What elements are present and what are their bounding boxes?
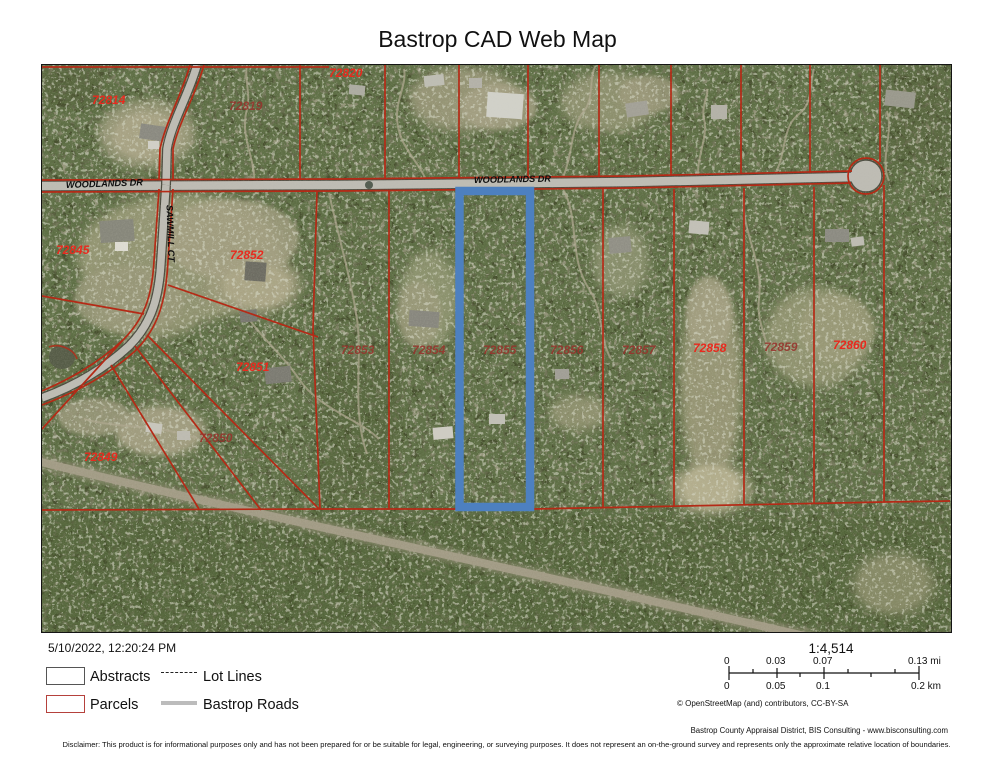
svg-text:72819: 72819 — [229, 99, 263, 113]
svg-text:WOODLANDS DR: WOODLANDS DR — [474, 174, 552, 185]
svg-text:72820: 72820 — [329, 66, 363, 80]
svg-text:SAWMILL CT: SAWMILL CT — [165, 205, 177, 264]
svg-text:72851: 72851 — [236, 360, 270, 374]
svg-text:72859: 72859 — [764, 340, 798, 354]
svg-text:72849: 72849 — [84, 450, 118, 464]
svg-text:72857: 72857 — [622, 343, 657, 357]
svg-text:72855: 72855 — [483, 343, 517, 357]
svg-text:72850: 72850 — [199, 431, 233, 445]
svg-text:72856: 72856 — [550, 343, 584, 357]
svg-text:72854: 72854 — [412, 343, 446, 357]
svg-text:72814: 72814 — [92, 93, 126, 107]
svg-text:72860: 72860 — [833, 338, 867, 352]
svg-text:72858: 72858 — [693, 341, 727, 355]
svg-text:72853: 72853 — [341, 343, 375, 357]
svg-text:72845: 72845 — [56, 243, 90, 257]
svg-text:72852: 72852 — [230, 248, 264, 262]
